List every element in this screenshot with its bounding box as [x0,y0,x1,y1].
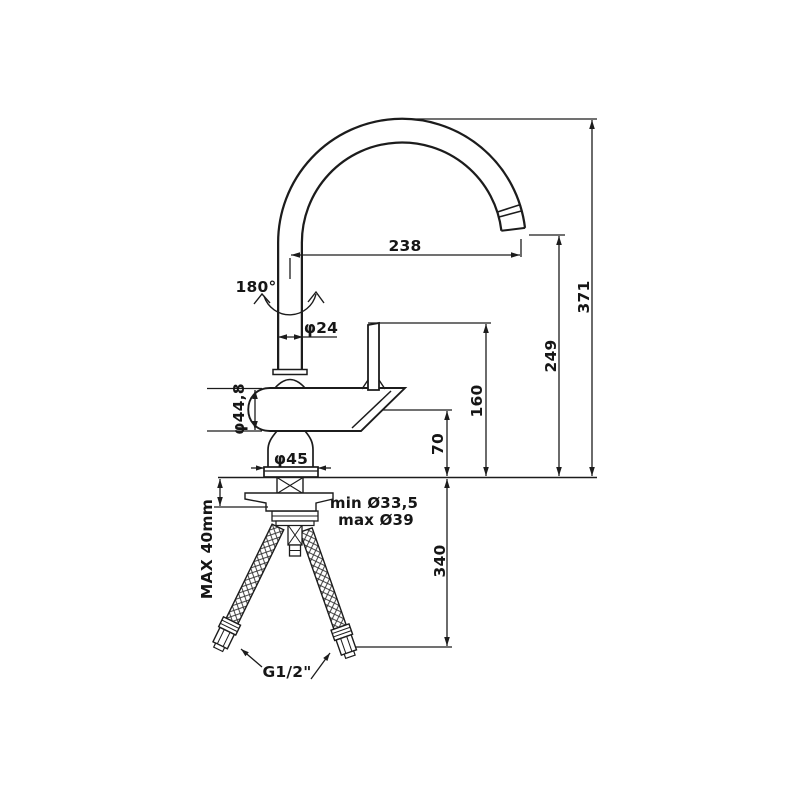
clamp-bracket [245,493,333,511]
dim-lever-top-height: 160 [468,385,486,418]
dim-body-top-height: 70 [429,433,447,455]
handle-lever [368,323,379,390]
faucet-technical-drawing: 238 371 249 160 70 340 180° φ24 φ44,8 φ4… [0,0,800,800]
hose-fitting-right [331,624,359,660]
dim-mounting-hole-max: max Ø39 [338,511,414,529]
mounting-nut [272,511,318,526]
base-flange [264,467,318,477]
spout-tube [273,131,525,388]
supply-hose-left [226,524,284,624]
dim-counter-max-thickness: MAX 40mm [198,499,216,599]
dim-hose-length: 340 [431,545,449,578]
dim-base-diameter: φ45 [274,450,308,468]
dim-outlet-height: 249 [542,340,560,373]
drawing-canvas [0,0,800,800]
dim-rotation-angle: 180° [236,278,277,296]
dim-connection-thread: G1/2" [262,663,311,681]
dim-spout-tube-diameter: φ24 [304,319,338,337]
pipe-collar [273,370,307,375]
fixing-stud [288,525,302,556]
hose-fitting-left [210,617,241,654]
supply-hose-right [300,528,346,629]
pipe-dome-joint [275,380,305,389]
dim-spout-reach: 238 [389,237,422,255]
dim-mounting-hole-min: min Ø33,5 [330,494,418,512]
body-outline [248,388,405,431]
dim-overall-height: 371 [575,281,593,314]
dim-body-diameter: φ44,8 [230,383,248,434]
mixer-body [248,323,405,431]
